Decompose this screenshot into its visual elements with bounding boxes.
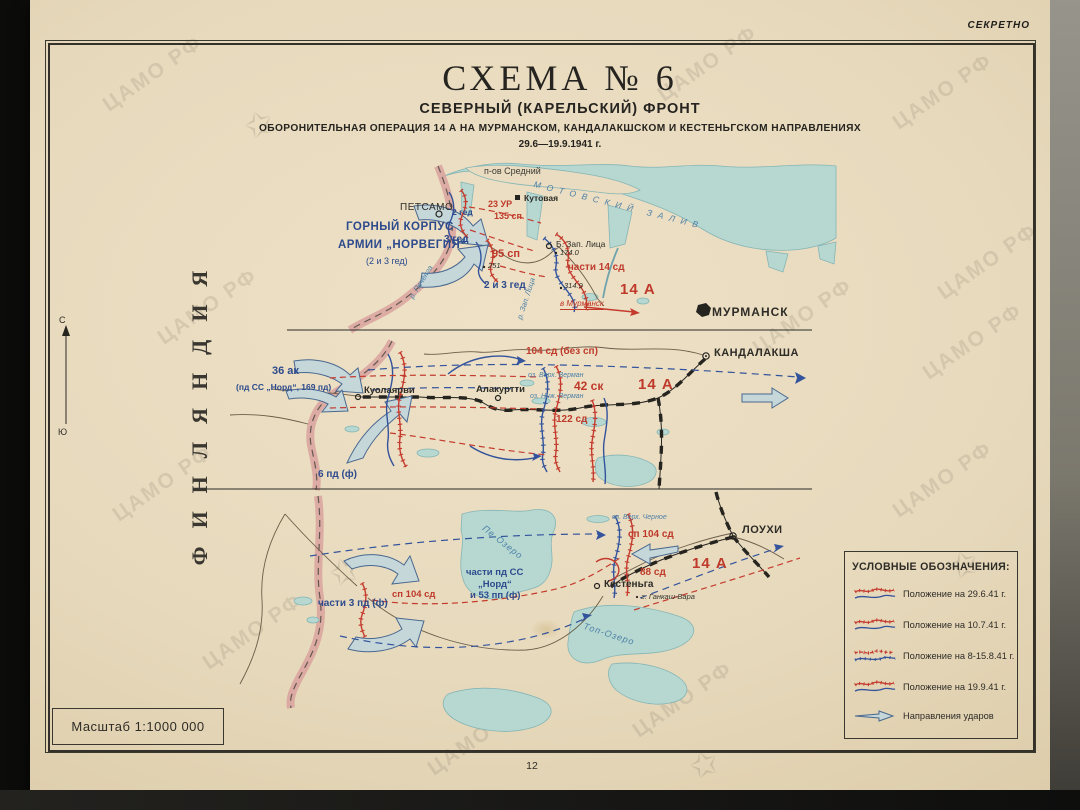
label-lake-nizh-verman: оз. Ниж. Верман	[530, 393, 584, 400]
label-units-14sd: части 14 сд	[568, 263, 625, 273]
label-23ur: 23 УР	[488, 200, 512, 209]
scanned-map-page: ЦАМО РФ ЦАМО РФ ЦАМО РФ ЦАМО РФ ЦАМО РФ …	[0, 0, 1080, 810]
attack-arrow-symbol	[853, 708, 897, 724]
compass-north: С	[59, 316, 66, 325]
label-height-174: 174.0	[560, 249, 579, 257]
label-122sd: 122 сд	[556, 415, 587, 425]
label-to-murmansk: в Мурманск	[560, 299, 604, 310]
legend-box: УСЛОВНЫЕ ОБОЗНАЧЕНИЯ: Положение на 29.6.…	[844, 551, 1018, 739]
page-title: СХЕМА № 6	[240, 60, 880, 96]
label-95sp: 95 сп	[492, 249, 520, 260]
label-sp104-west: сп 104 сд	[392, 590, 435, 600]
label-army-14a-bottom: 14 А	[692, 556, 728, 571]
label-ss-nord-2: „Норд“	[478, 580, 512, 590]
label-alakurtti: Алакуртти	[476, 385, 525, 395]
secret-stamp: СЕКРЕТНО	[930, 20, 1030, 31]
legend-item: Положение на 10.7.41 г.	[853, 613, 1006, 637]
label-sp104-east: сп 104 сд	[628, 530, 674, 540]
label-height-314: 314.9	[564, 282, 583, 290]
label-3pd: части 3 пд (ф)	[318, 599, 388, 609]
title-operation: ОБОРОНИТЕЛЬНАЯ ОПЕРАЦИЯ 14 А НА МУРМАНСК…	[140, 124, 980, 134]
label-lake-verh-verman: оз. Верх. Верман	[528, 372, 584, 379]
title-dates: 29.6—19.9.1941 г.	[240, 140, 880, 150]
label-mountain-corps-1: ГОРНЫЙ КОРПУС	[346, 222, 454, 234]
front-line-symbol	[853, 648, 897, 664]
label-louhi: ЛОУХИ	[742, 525, 783, 536]
front-line-symbol	[853, 617, 897, 633]
front-line-symbol	[853, 586, 897, 602]
label-2ged: 2 гед	[452, 208, 473, 217]
compass-south: Ю	[58, 428, 67, 437]
label-kestenga-town: Кестеньга	[604, 580, 653, 590]
legend-item: Направления ударов	[853, 704, 994, 728]
label-army-14a-top: 14 А	[620, 282, 656, 297]
label-88sd: 88 сд	[640, 568, 666, 578]
label-gankash-vara: г. Ганкаш-Вара	[641, 593, 695, 601]
scale-label: Масштаб 1:1000 000	[71, 719, 204, 734]
label-36ak: 36 ак	[272, 366, 299, 377]
country-finland: ФИНЛЯНДИЯ	[189, 249, 211, 569]
label-6pd: 6 пд (ф)	[318, 470, 357, 480]
legend-item-label: Положение на 10.7.41 г.	[903, 620, 1006, 630]
label-kandalaksha-city: КАНДАЛАКША	[714, 348, 799, 359]
label-2-3ged: 2 и 3 гед	[484, 281, 526, 291]
label-ss-nord-1: части пд СС	[466, 568, 523, 578]
label-104sd: 104 сд (без сп)	[526, 347, 598, 357]
label-sredniy-peninsula: п-ов Средний	[484, 167, 541, 176]
label-petsamo: ПЕТСАМО	[400, 203, 453, 213]
label-mountain-corps-3: (2 и 3 гед)	[366, 257, 408, 266]
label-135sp: 135 сп	[494, 212, 522, 221]
front-line-symbol	[853, 679, 897, 695]
scale-box: Масштаб 1:1000 000	[52, 708, 224, 745]
legend-item-label: Направления ударов	[903, 711, 994, 721]
label-height-251: 251	[488, 262, 501, 270]
legend-item: Положение на 19.9.41 г.	[853, 675, 1006, 699]
label-army-14a-middle: 14 А	[638, 377, 674, 392]
legend-title: УСЛОВНЫЕ ОБОЗНАЧЕНИЯ:	[845, 561, 1017, 573]
label-kutovaya: Кутовая	[524, 194, 558, 203]
label-lake-chernoe: оз. Верх. Черное	[612, 514, 667, 521]
label-murmansk-city: МУРМАНСК	[712, 306, 789, 318]
label-mountain-corps-2: АРМИИ „НОРВЕГИЯ“	[338, 240, 467, 252]
title-front: СЕВЕРНЫЙ (КАРЕЛЬСКИЙ) ФРОНТ	[240, 102, 880, 117]
label-kuolajarvi: Куолаярви	[364, 386, 415, 396]
legend-item-label: Положение на 8-15.8.41 г.	[903, 651, 1014, 661]
legend-item-label: Положение на 29.6.41 г.	[903, 589, 1006, 599]
legend-item: Положение на 29.6.41 г.	[853, 582, 1006, 606]
legend-item-label: Положение на 19.9.41 г.	[903, 682, 1006, 692]
label-42sk: 42 ск	[574, 380, 603, 392]
label-36ak-sub: (пд СС „Норд“, 169 пд)	[236, 383, 331, 392]
label-ss-nord-3: и 53 пп (ф)	[470, 591, 520, 601]
page-number: 12	[500, 760, 564, 772]
legend-item: Положение на 8-15.8.41 г.	[853, 644, 1014, 668]
